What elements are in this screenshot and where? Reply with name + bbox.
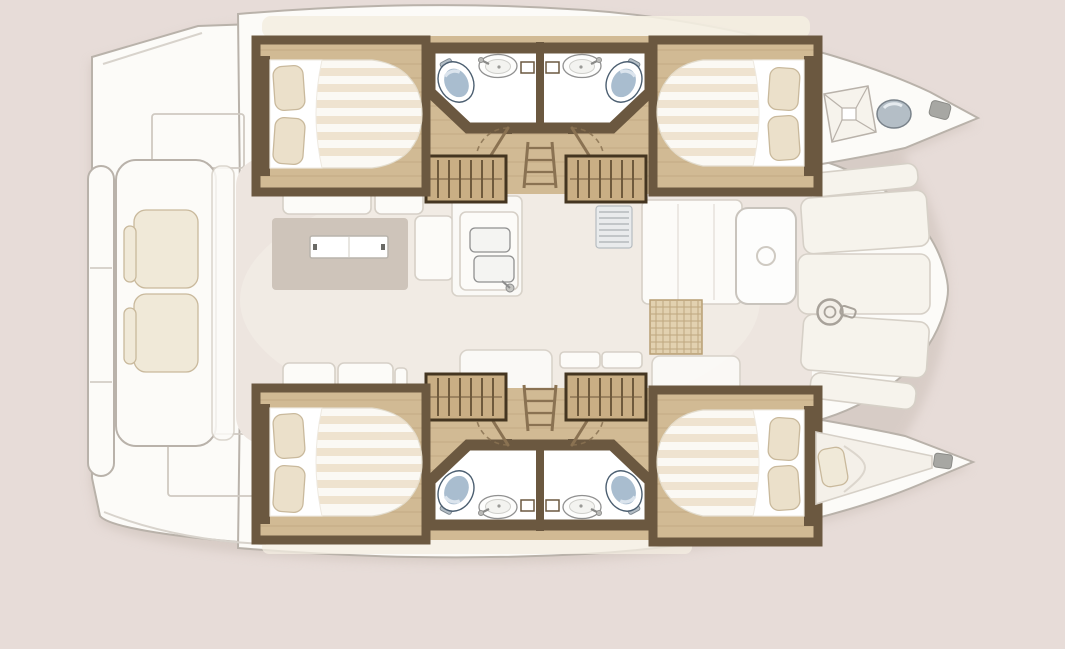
port-forward-stairs	[566, 156, 646, 202]
swim-platform-steps	[88, 166, 114, 476]
bench-cushion	[134, 210, 198, 288]
starboard-aft-stairs	[426, 374, 506, 420]
deck-panel	[800, 314, 930, 379]
deck-panel	[798, 254, 930, 314]
bench-backrest	[212, 166, 234, 440]
coachroof-strip	[262, 16, 810, 38]
sink-basin	[470, 228, 510, 252]
port-aft-stairs	[426, 156, 506, 202]
sink-basin	[474, 256, 514, 282]
table-latch	[313, 244, 317, 250]
bow-cleat	[933, 453, 953, 469]
bench-side-pad	[124, 226, 136, 282]
catamaran-floorplan: Top-down interior floor plan of a sailin…	[0, 0, 1065, 649]
side-bench	[415, 216, 453, 280]
seat-panel	[602, 352, 642, 368]
bow-hatch-center	[842, 108, 856, 120]
table-latch	[381, 244, 385, 250]
starboard-forward-stairs	[566, 374, 646, 420]
floor-hatch-grid	[650, 300, 702, 354]
galley-cabinets	[642, 200, 742, 304]
foredeck	[798, 163, 930, 411]
galley	[452, 196, 522, 296]
bench-side-pad	[124, 308, 136, 364]
seat-panel	[560, 352, 600, 368]
door-with-porthole	[736, 208, 796, 304]
floorplan-svg: Top-down interior floor plan of a sailin…	[0, 0, 1065, 649]
dinette-table	[310, 236, 388, 258]
vent-louver	[596, 206, 632, 248]
bench-cushion	[134, 294, 198, 372]
deck-panel	[800, 190, 930, 255]
